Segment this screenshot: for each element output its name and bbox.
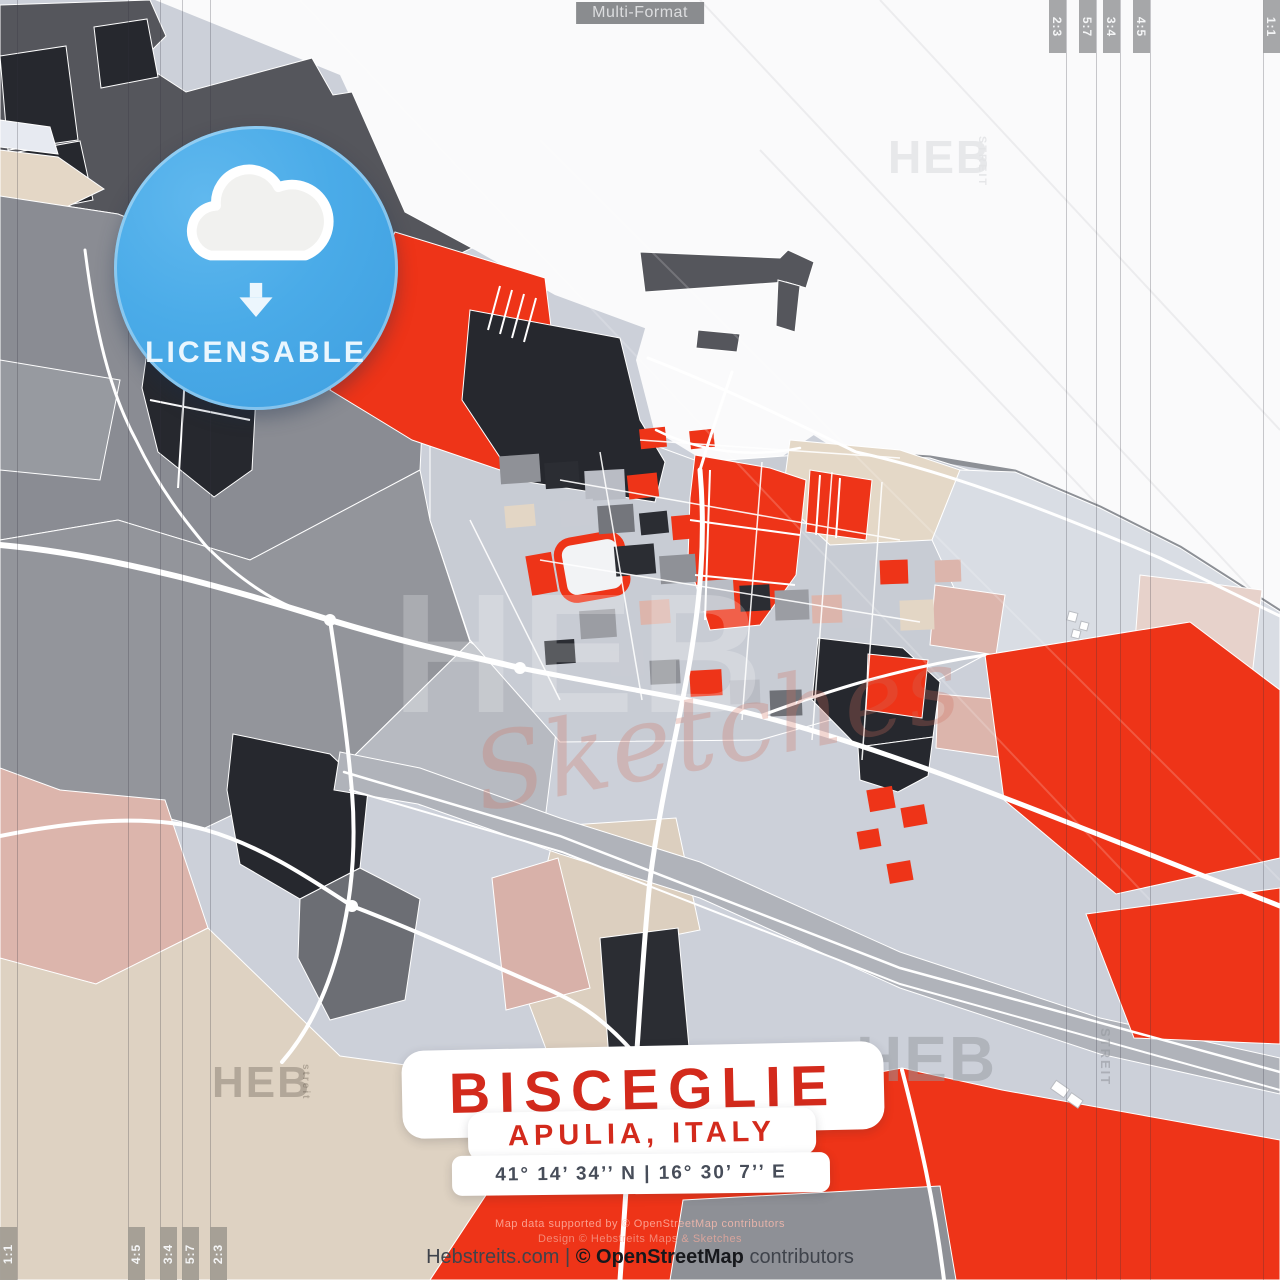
credits-line: Hebstreits.com | © OpenStreetMap contrib… — [0, 1246, 1280, 1269]
format-mark-top-2-3: 2:3 — [1049, 0, 1066, 53]
crop-line — [1120, 0, 1121, 1280]
licensable-badge[interactable]: LICENSABLE — [114, 126, 398, 410]
credit-site: Hebstreits.com — [426, 1246, 559, 1268]
format-mark-label: 1:1 — [1265, 16, 1279, 36]
format-chip: Multi-Format — [576, 2, 704, 24]
format-mark-label: 3:4 — [1105, 16, 1119, 36]
region-subtitle: APULIA, ITALY — [508, 1115, 777, 1153]
fineprint-map-data: Map data supported by © OpenStreetMap co… — [0, 1218, 1280, 1230]
map-poster: HEB STREIT HEB Sketches HEB streit HEB S… — [0, 0, 1280, 1280]
crop-line — [1096, 0, 1097, 1280]
crop-line — [1066, 0, 1067, 1280]
crop-line — [17, 0, 18, 1280]
format-mark-top-5-7: 5:7 — [1079, 0, 1096, 53]
coordinates-text: 41° 14’ 34’’ N | 16° 30’ 7’’ E — [495, 1161, 787, 1186]
licensable-label: LICENSABLE — [145, 336, 367, 370]
credit-osm: © OpenStreetMap — [576, 1246, 744, 1268]
crop-line — [1150, 0, 1151, 1280]
coordinates-sticker: 41° 14’ 34’’ N | 16° 30’ 7’’ E — [452, 1152, 830, 1196]
format-mark-label: 2:3 — [1051, 16, 1065, 36]
format-mark-label: 4:5 — [1135, 16, 1149, 36]
download-arrow-icon — [225, 274, 287, 328]
credit-contributors: contributors — [749, 1246, 854, 1268]
credit-divider: | — [565, 1246, 570, 1268]
fineprint-design: Design © Hebstreits Maps & Sketches — [0, 1233, 1280, 1245]
cloud-icon — [172, 160, 340, 272]
crop-line — [1263, 0, 1264, 1280]
format-mark-top-4-5: 4:5 — [1133, 0, 1150, 53]
format-mark-label: 5:7 — [1081, 16, 1095, 36]
crop-line — [128, 0, 129, 1280]
format-mark-top-3-4: 3:4 — [1103, 0, 1120, 53]
format-mark-top-1-1: 1:1 — [1263, 0, 1280, 53]
